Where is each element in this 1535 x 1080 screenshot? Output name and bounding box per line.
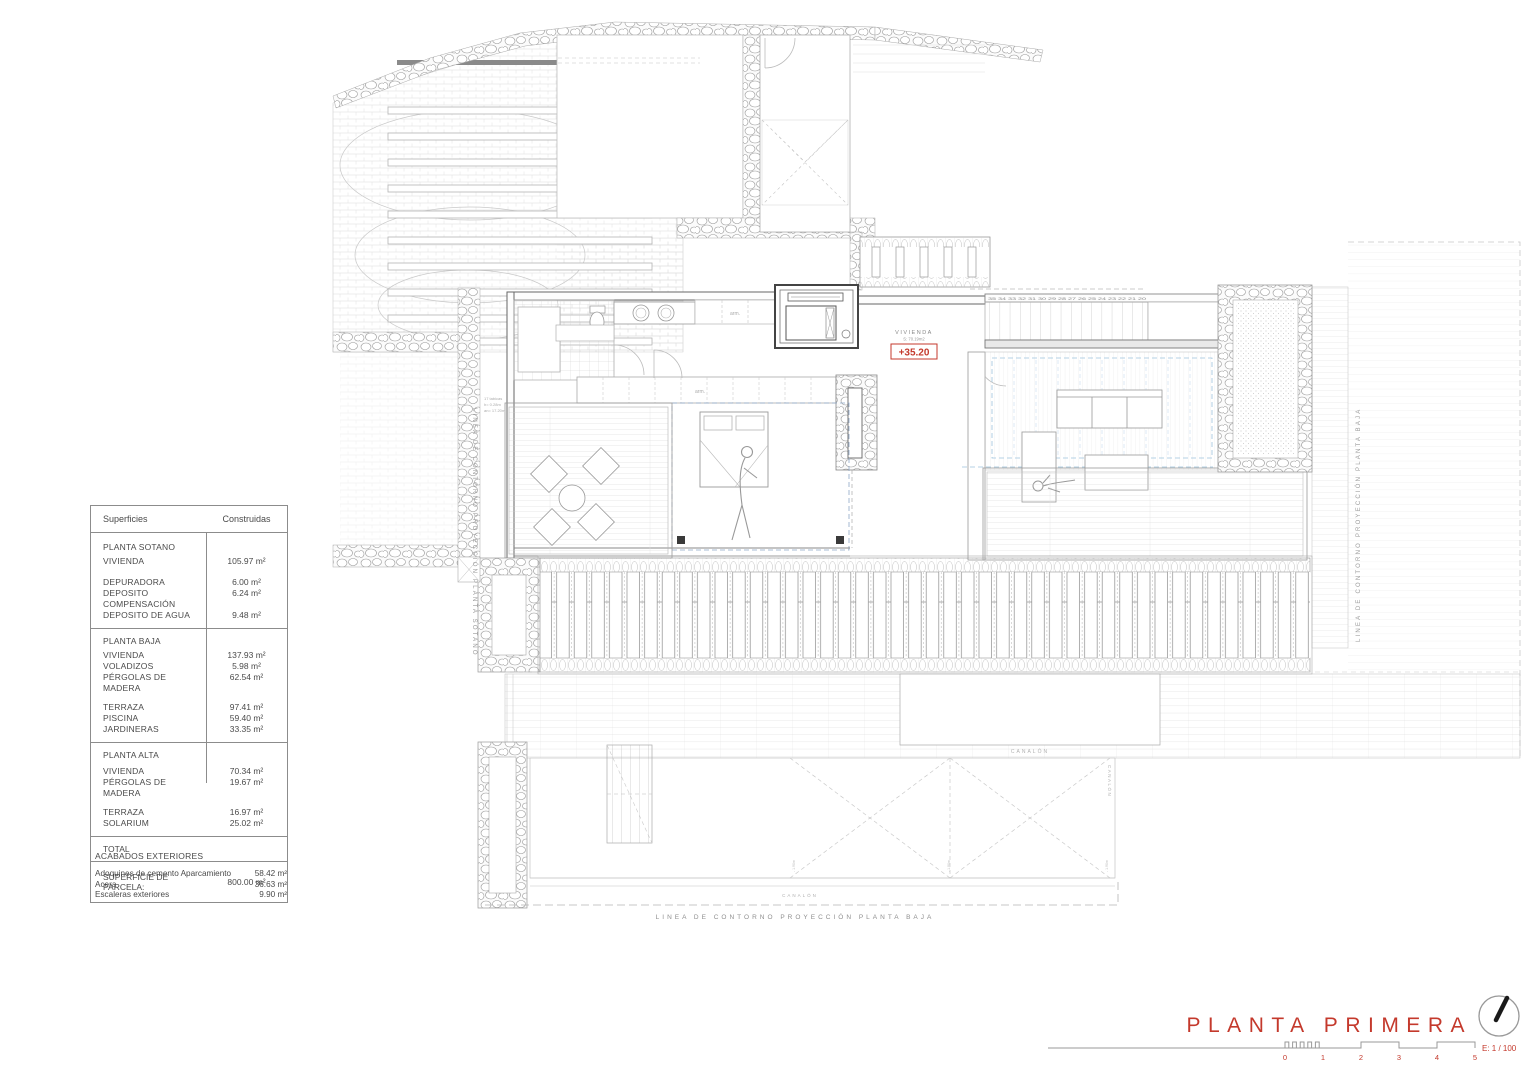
pergola-rail-bottom bbox=[540, 658, 1310, 672]
room-label: VIVIENDA bbox=[895, 330, 933, 336]
canalon-label: CANALÓN bbox=[782, 892, 818, 898]
table-row: DEPOSITO COMPENSACIÓN6.24 m² bbox=[91, 588, 287, 610]
right-deck bbox=[987, 472, 1303, 556]
title-block: PLANTA PRIMERA 0 1 2 3 4 5 E: 1 / 100 bbox=[1048, 996, 1519, 1062]
wall-top-left bbox=[507, 292, 777, 300]
stair-step-numbers: 35 34 33 32 31 30 29 28 27 26 25 24 23 2… bbox=[988, 297, 1146, 301]
table-row: DEPOSITO DE AGUA9.48 m² bbox=[91, 610, 287, 621]
stone-planter bbox=[1218, 285, 1312, 472]
shelf bbox=[556, 325, 614, 341]
closet-label: arm. bbox=[695, 389, 705, 395]
roof-dim-label: - 1.90m bbox=[792, 860, 796, 872]
stone-band-top-right bbox=[875, 27, 1043, 62]
table-row: VOLADIZOS5.98 m² bbox=[91, 661, 287, 672]
wall-pillar bbox=[968, 352, 985, 560]
level-value: +35.20 bbox=[899, 348, 930, 359]
table-row: VIVIENDA70.34 m² bbox=[91, 766, 287, 777]
sheet-title: PLANTA PRIMERA bbox=[1187, 1014, 1473, 1037]
table-row: JARDINERAS33.35 m² bbox=[91, 724, 287, 735]
pergola-rail-top bbox=[540, 558, 1310, 572]
contour-label-right: LINEA DE CONTORNO PROYECCIÓN PLANTA BAJA bbox=[1355, 408, 1362, 642]
scale-bar bbox=[1048, 1042, 1475, 1048]
brick-paving-lower bbox=[340, 352, 462, 545]
roof-below: - 1.90m - 1.90m - 1.90m CANALÓN CANALÓN … bbox=[478, 742, 1118, 921]
bed-icon bbox=[700, 412, 768, 487]
terrace-stripes bbox=[1348, 242, 1520, 670]
stone-band-left bbox=[333, 332, 462, 352]
column bbox=[836, 536, 844, 544]
closet-label: arm. bbox=[730, 311, 740, 317]
svg-text:an= 17.20m: an= 17.20m bbox=[484, 408, 506, 413]
upper-right-room bbox=[760, 35, 985, 232]
col-header-superficies: Superficies bbox=[91, 514, 206, 524]
roof-dim-label: - 1.90m bbox=[1105, 860, 1109, 872]
pergola-slats bbox=[540, 572, 1310, 658]
svg-text:0: 0 bbox=[1283, 1053, 1287, 1062]
roof-dim-label: - 1.90m bbox=[947, 860, 951, 872]
left-terrace bbox=[505, 403, 672, 558]
scale-ticks: 0 1 2 3 4 5 bbox=[1283, 1053, 1477, 1062]
stone-feature-wall bbox=[836, 375, 877, 548]
table-row: PLANTA ALTA bbox=[91, 749, 287, 762]
col-header-construidas: Construidas bbox=[206, 514, 287, 524]
svg-text:17 tabicas: 17 tabicas bbox=[484, 396, 502, 401]
table-row: PISCINA59.40 m² bbox=[91, 713, 287, 724]
canalon-label: CANALÓN bbox=[1011, 748, 1049, 755]
table-row: PÉRGOLAS DE MADERA19.67 m² bbox=[91, 777, 287, 799]
svg-text:1: 1 bbox=[1321, 1053, 1325, 1062]
areas-table-header: Superficies Construidas bbox=[91, 506, 287, 533]
round-table-icon bbox=[559, 485, 585, 511]
vanity bbox=[614, 302, 695, 324]
acabados-exteriores: ACABADOS EXTERIORES Adoquines de cemento… bbox=[95, 851, 287, 901]
elevator bbox=[775, 285, 858, 348]
floor-plan-sheet: { "colors":{"accent_red":"#c4392c","line… bbox=[0, 0, 1535, 1080]
wall-top-mid bbox=[855, 296, 985, 304]
acabados-item: Escaleras exteriores9.90 m² bbox=[95, 890, 287, 901]
sink-icon bbox=[633, 305, 649, 321]
tile-column bbox=[1312, 287, 1348, 648]
table-row: SOLARIUM25.02 m² bbox=[91, 818, 287, 829]
terrace-opening bbox=[900, 674, 1160, 745]
svg-text:2: 2 bbox=[1359, 1053, 1363, 1062]
table-row: PLANTA BAJA bbox=[91, 635, 287, 648]
door-arc-icon bbox=[654, 350, 682, 378]
shower-tray bbox=[518, 307, 560, 372]
acabados-item: Acera36.63 m² bbox=[95, 880, 287, 891]
room-area-label: S: 70.19m2 bbox=[903, 337, 925, 342]
sink-icon bbox=[658, 305, 674, 321]
table-column-divider bbox=[206, 533, 207, 783]
pergola-band bbox=[478, 556, 1312, 674]
table-row: TERRAZA16.97 m² bbox=[91, 807, 287, 818]
sofa-icon bbox=[1057, 390, 1162, 428]
table-row: PÉRGOLAS DE MADERA62.54 m² bbox=[91, 672, 287, 694]
table-row: PLANTA SOTANO bbox=[91, 541, 287, 554]
contour-label-bottom: LINEA DE CONTORNO PROYECCIÓN PLANTA BAJA bbox=[656, 912, 935, 921]
scale-label: E: 1 / 100 bbox=[1482, 1044, 1517, 1053]
table-row: DEPURADORA6.00 m² bbox=[91, 577, 287, 588]
svg-text:3: 3 bbox=[1397, 1053, 1401, 1062]
level-label: VIVIENDA S: 70.19m2 +35.20 bbox=[891, 330, 937, 359]
stone-band-courtyard-right bbox=[743, 35, 760, 232]
acabados-item: Adoquines de cemento Aparcamiento58.42 m… bbox=[95, 869, 287, 880]
svg-text:5: 5 bbox=[1473, 1053, 1477, 1062]
column bbox=[677, 536, 685, 544]
courtyard bbox=[557, 35, 743, 218]
table-row: TERRAZA97.41 m² bbox=[91, 702, 287, 713]
canalon-label-vertical: CANALÓN bbox=[1107, 765, 1113, 797]
table-row: VIVIENDA105.97 m² bbox=[91, 556, 287, 567]
small-pergola bbox=[850, 232, 990, 290]
areas-table: Superficies Construidas PLANTA SOTANO VI… bbox=[90, 505, 288, 903]
stone-band-lower bbox=[333, 545, 470, 567]
acabados-title: ACABADOS EXTERIORES bbox=[95, 851, 287, 861]
svg-text:h= 0.28m: h= 0.28m bbox=[484, 402, 501, 407]
table-row: VIVIENDA137.93 m² bbox=[91, 650, 287, 661]
elevator-cab bbox=[786, 306, 836, 340]
stair-annotation: 17 tabicas h= 0.28m an= 17.20m bbox=[484, 396, 506, 413]
contour-label-left: LINEA DE CONTORNO PROYECCIÓN PLANTA SOTA… bbox=[471, 408, 478, 657]
svg-text:4: 4 bbox=[1435, 1053, 1439, 1062]
